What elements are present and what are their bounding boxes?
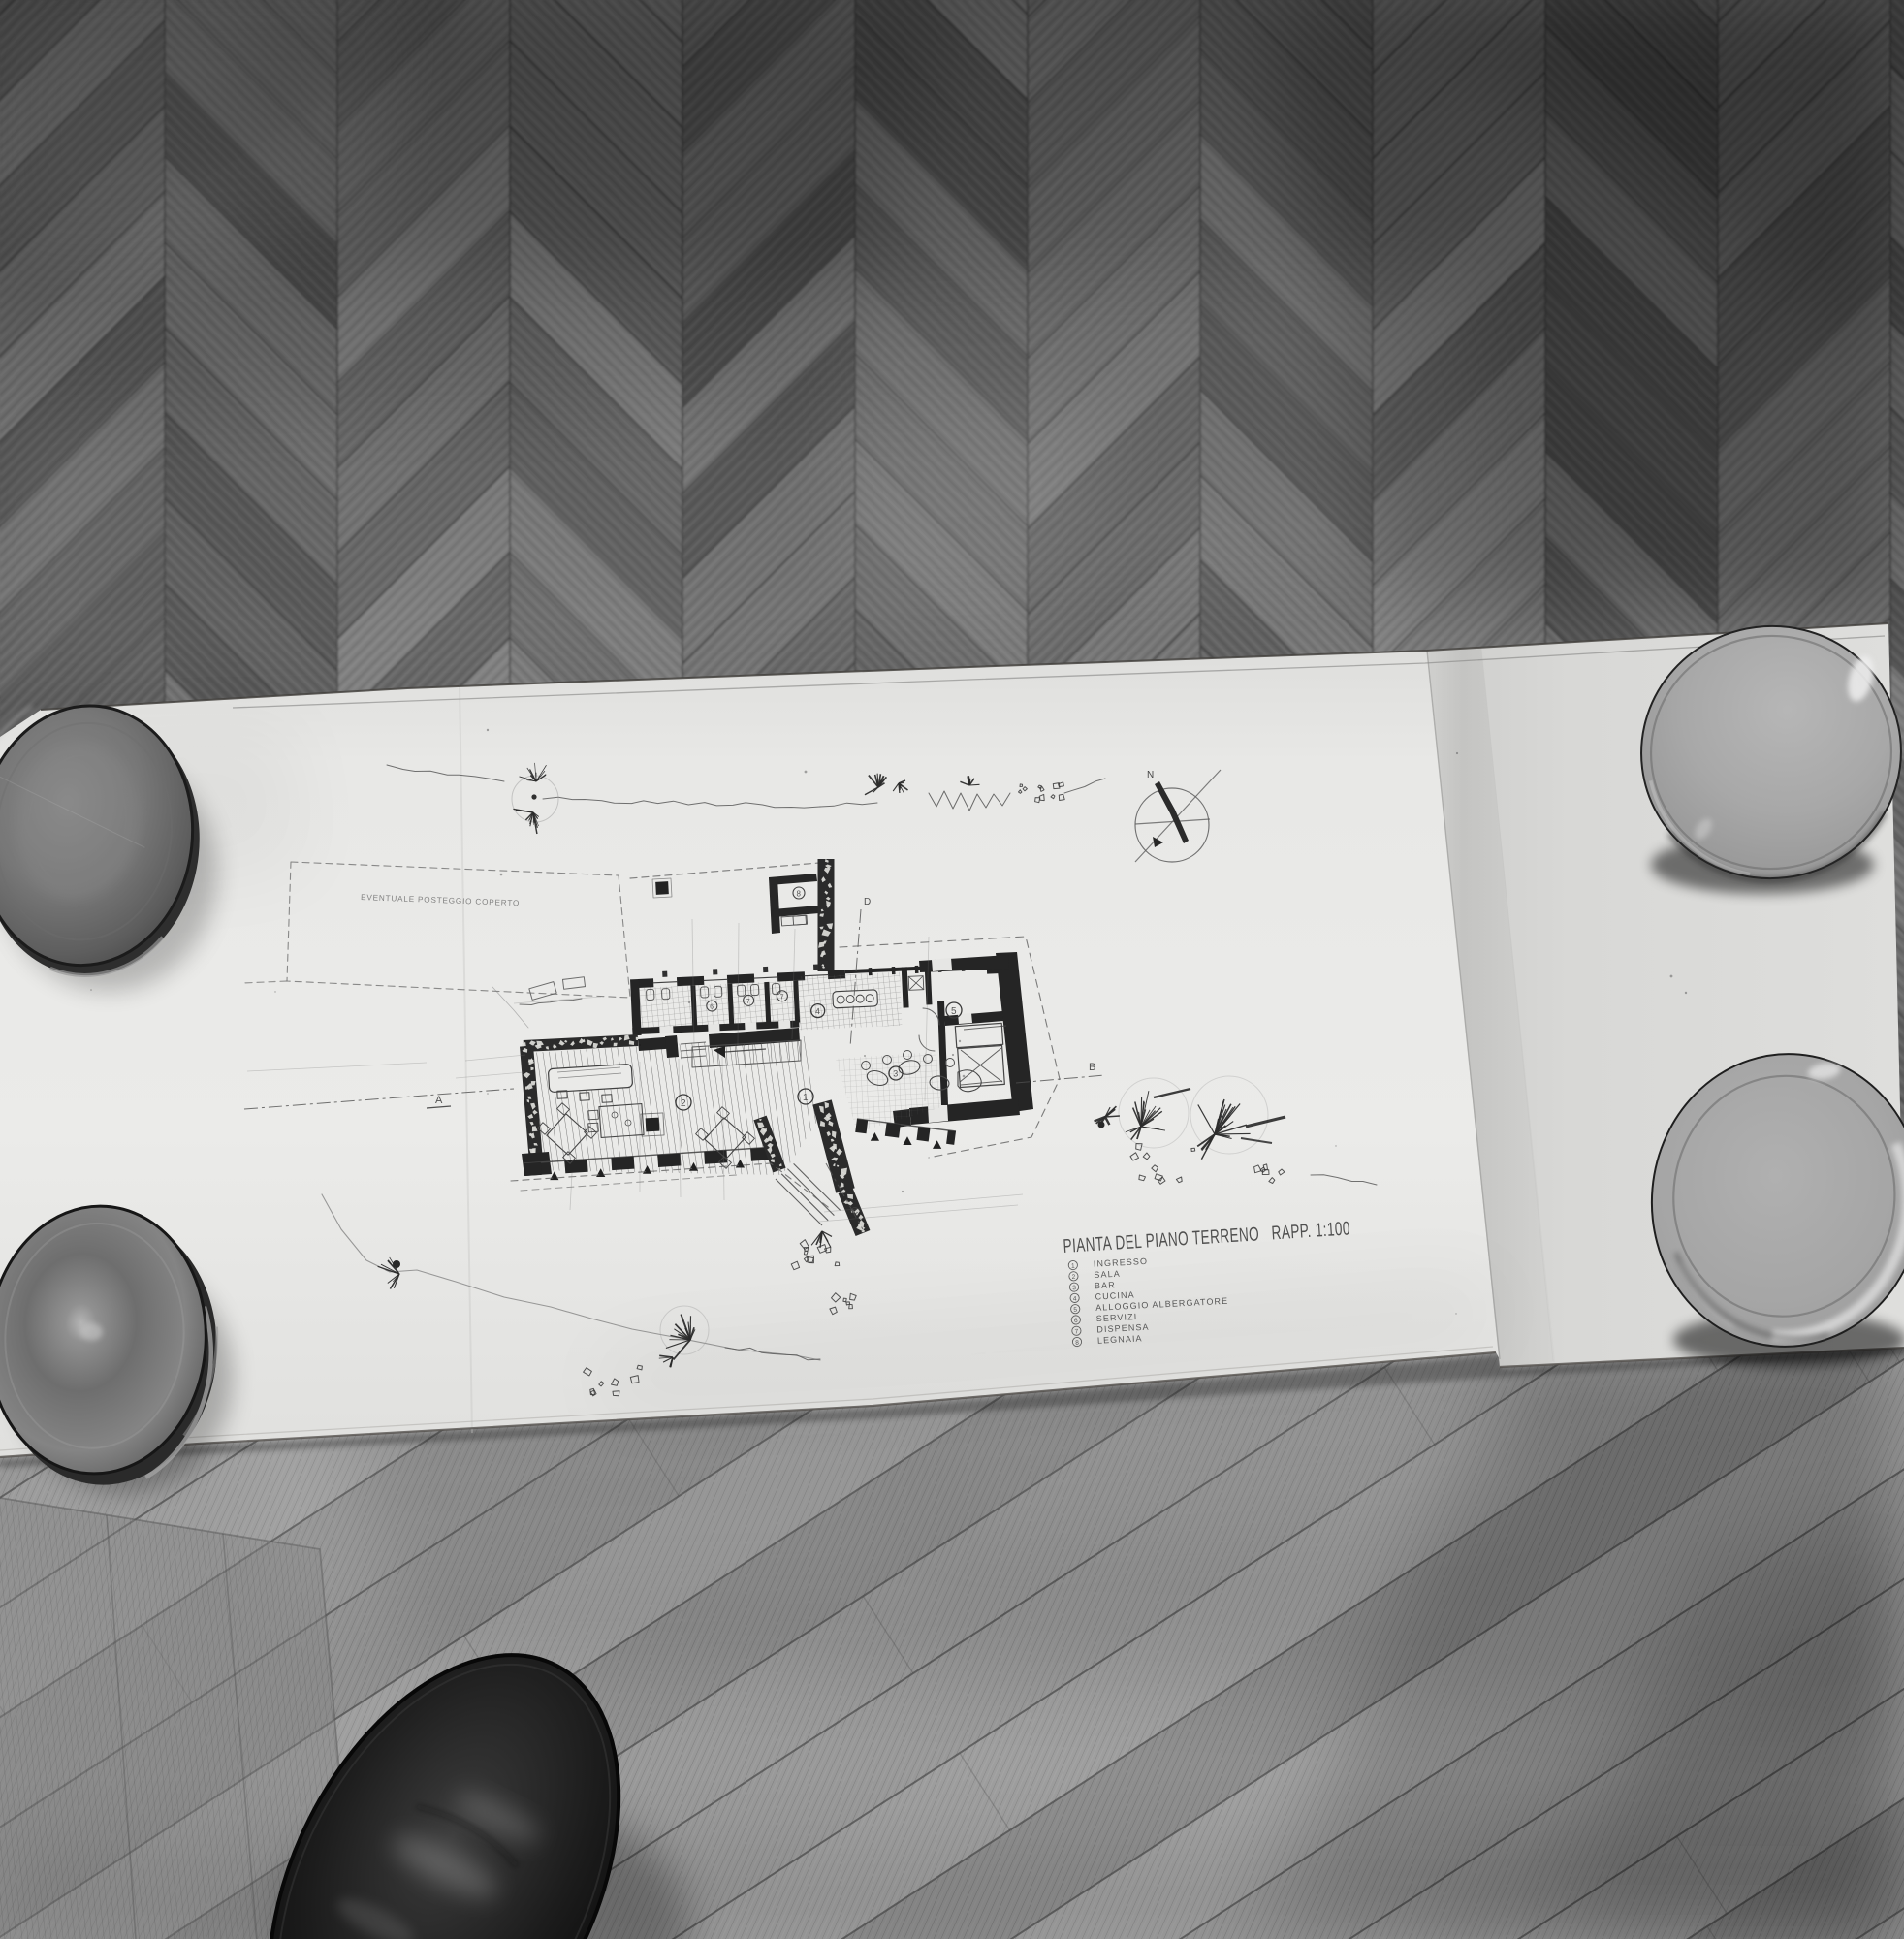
svg-text:SALA: SALA (1094, 1269, 1121, 1280)
svg-text:B: B (1089, 1062, 1096, 1073)
svg-text:8: 8 (797, 890, 802, 899)
svg-text:1: 1 (803, 1093, 809, 1103)
svg-text:4: 4 (815, 1006, 821, 1016)
svg-text:7: 7 (780, 994, 785, 1001)
svg-text:6: 6 (710, 1003, 714, 1010)
svg-text:A: A (435, 1095, 443, 1106)
svg-text:D: D (864, 897, 872, 907)
svg-text:5: 5 (951, 1006, 957, 1017)
svg-text:2: 2 (681, 1098, 686, 1109)
svg-text:7: 7 (746, 999, 751, 1005)
svg-text:BAR: BAR (1095, 1280, 1116, 1290)
svg-text:CUCINA: CUCINA (1095, 1289, 1135, 1301)
svg-text:3: 3 (893, 1069, 899, 1079)
svg-text:N: N (1147, 770, 1155, 780)
svg-text:C: C (851, 1206, 859, 1217)
